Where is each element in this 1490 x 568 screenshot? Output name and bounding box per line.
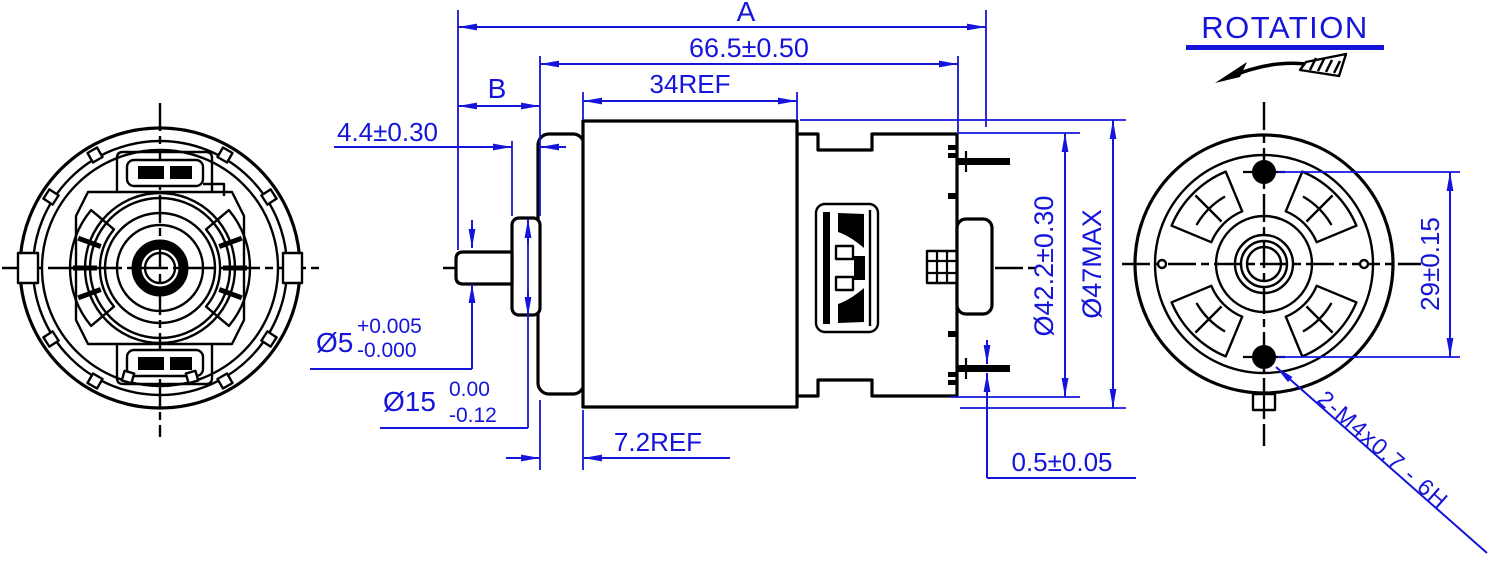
dim-terminal-thickness-label: 0.5±0.05 [1011,447,1112,477]
rear-view [1122,102,1421,446]
front-view [2,103,322,437]
dim-shaft-extension-label: B [488,73,507,104]
motor-outline-drawing: ROTATION A 66.5±0.50 B 34REF [0,0,1490,568]
rotation-underline [1186,45,1384,50]
dimension-mounting-thread: 2-M4x0.7 - 6H [1276,367,1487,553]
side-view [443,121,1040,407]
terminal-bottom [957,358,1010,379]
dim-mounting-hole-spacing-label: 29±0.15 [1415,217,1445,311]
rear-bottom-tab [1253,394,1275,410]
dim-shaft-diameter-upper: +0.005 [357,315,422,338]
motor-body [583,121,797,407]
rotation-label: ROTATION [1201,10,1369,45]
rotation-annotation: ROTATION [1186,10,1384,83]
rotation-direction-arrow-icon [1215,54,1346,83]
motor-shaft [456,252,512,284]
front-endcap [538,134,584,394]
dim-shaft-diameter-lower: -0.000 [357,339,417,362]
dim-overall-length-label: A [737,0,756,27]
dim-max-diameter-label: Ø47MAX [1077,209,1107,319]
dimension-body-length: 34REF [583,69,797,120]
terminal-top [957,151,1010,172]
internal-brush-card [816,204,878,332]
dim-case-length-label: 66.5±0.50 [689,33,809,63]
mounting-hole-top [1252,160,1276,184]
rear-boss [957,219,992,314]
mounting-hole-bottom [1252,345,1276,369]
dim-endcap-diameter-label: Ø42.2±0.30 [1029,196,1059,337]
engineering-drawing-canvas: ROTATION A 66.5±0.50 B 34REF [0,0,1490,568]
dim-front-cap-length-label: 7.2REF [614,427,702,457]
dim-shaft-diameter-nominal: Ø5 [316,327,353,358]
dim-pilot-diameter-upper: 0.00 [449,378,490,401]
dimension-shaft-diameter: Ø5 +0.005 -0.000 [310,220,472,369]
dim-mounting-thread-label: 2-M4x0.7 - 6H [1313,385,1454,514]
front-brush-housing-top [117,152,224,196]
rear-bearing-block [927,251,958,283]
dim-pilot-diameter-nominal: Ø15 [383,386,436,417]
dimension-shaft-extension: B [458,73,540,106]
dim-body-length-label: 34REF [650,69,731,99]
rear-vent-slot [1286,172,1357,243]
dimension-front-cap-length: 7.2REF [506,400,730,470]
pilot-boss [512,218,540,315]
dim-boss-thickness-label: 4.4±0.30 [337,117,438,147]
dimension-boss-thickness: 4.4±0.30 [334,117,566,216]
dim-pilot-diameter-lower: -0.12 [449,404,497,427]
